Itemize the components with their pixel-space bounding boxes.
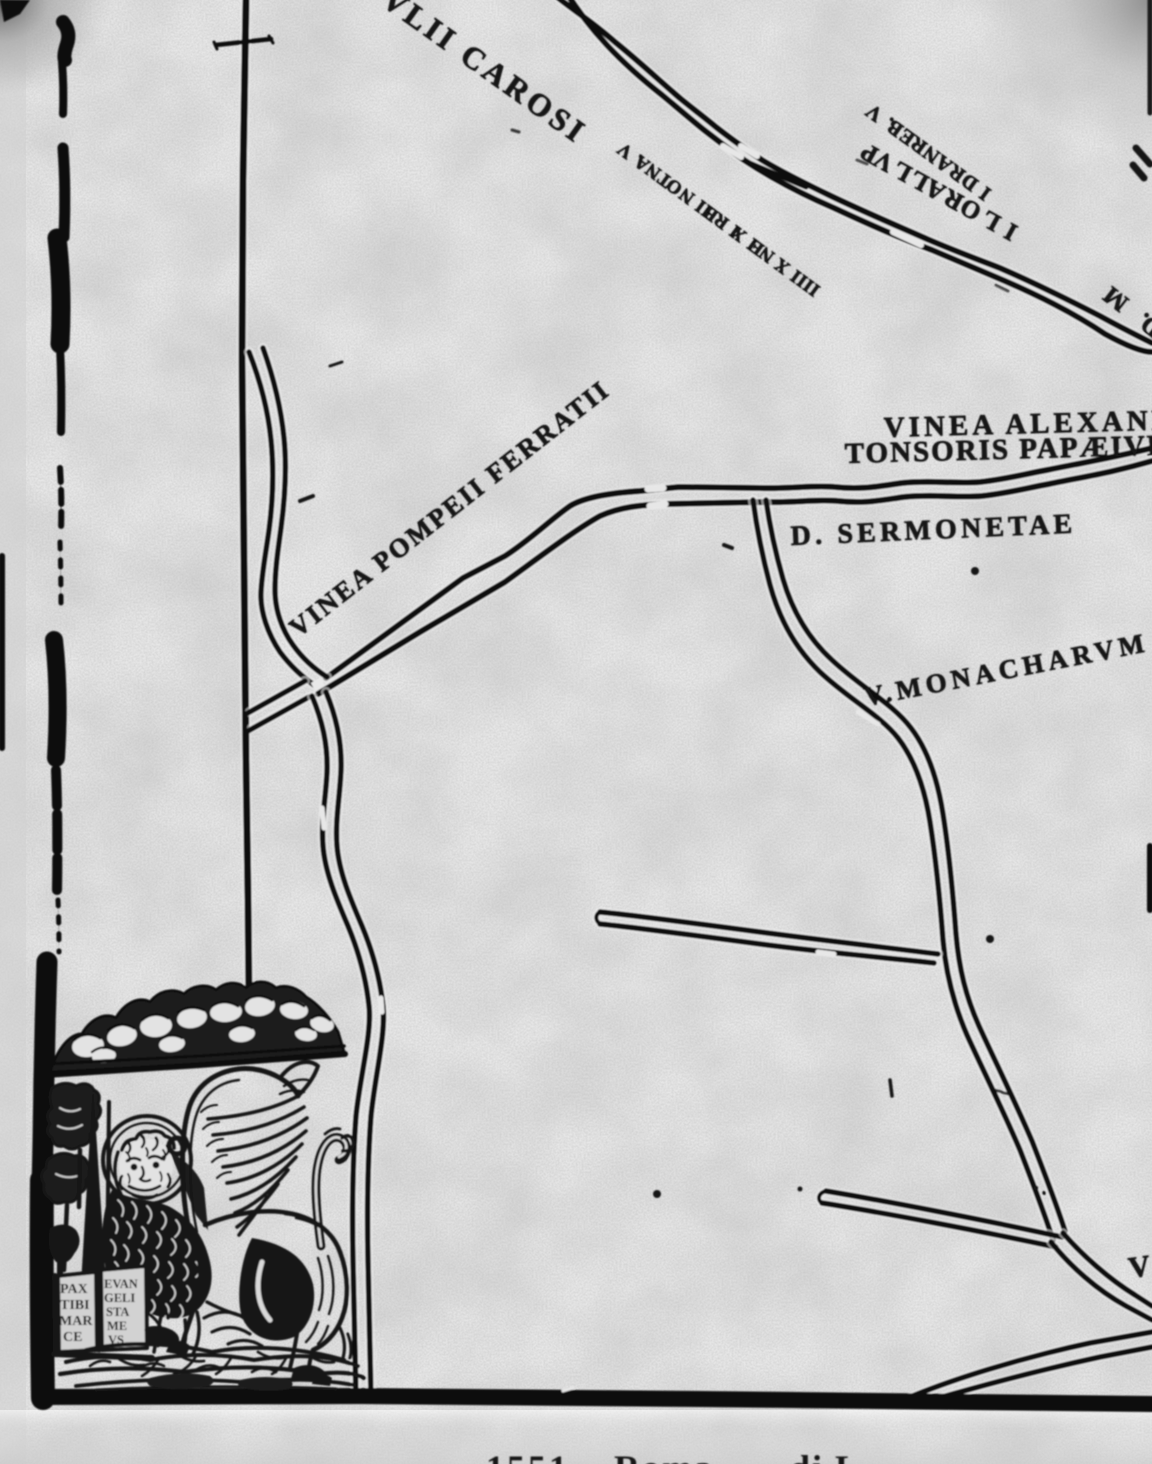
svg-text:MAR: MAR (59, 1314, 93, 1329)
svg-text:ME: ME (107, 1319, 127, 1333)
svg-text:Roma: Roma (614, 1448, 714, 1464)
svg-text:V: V (1126, 1249, 1152, 1285)
svg-text:GELI: GELI (104, 1291, 135, 1305)
svg-text:1551: 1551 (486, 1448, 570, 1464)
svg-text:PAX: PAX (60, 1282, 88, 1297)
svg-text:di L: di L (790, 1448, 861, 1464)
svg-text:TIBI: TIBI (60, 1298, 90, 1313)
svg-text:CE: CE (63, 1330, 82, 1345)
svg-text:EVAN: EVAN (104, 1277, 138, 1291)
svg-text:STA: STA (106, 1305, 129, 1319)
